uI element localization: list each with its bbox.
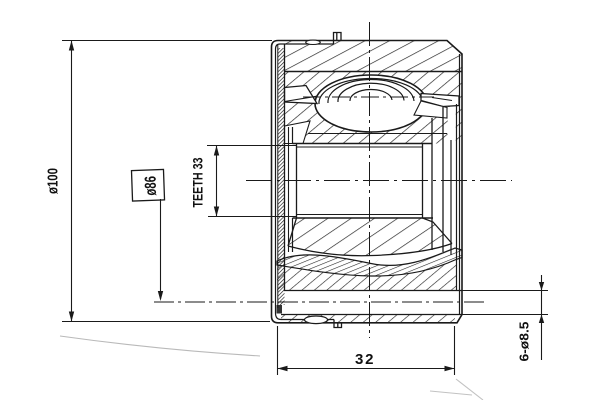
- svg-text:ø86: ø86: [143, 176, 160, 196]
- svg-text:6-ø8.5: 6-ø8.5: [517, 322, 532, 362]
- svg-text:ø100: ø100: [45, 168, 62, 194]
- svg-text:32: 32: [355, 351, 375, 368]
- svg-text:TEETH 33: TEETH 33: [190, 157, 206, 207]
